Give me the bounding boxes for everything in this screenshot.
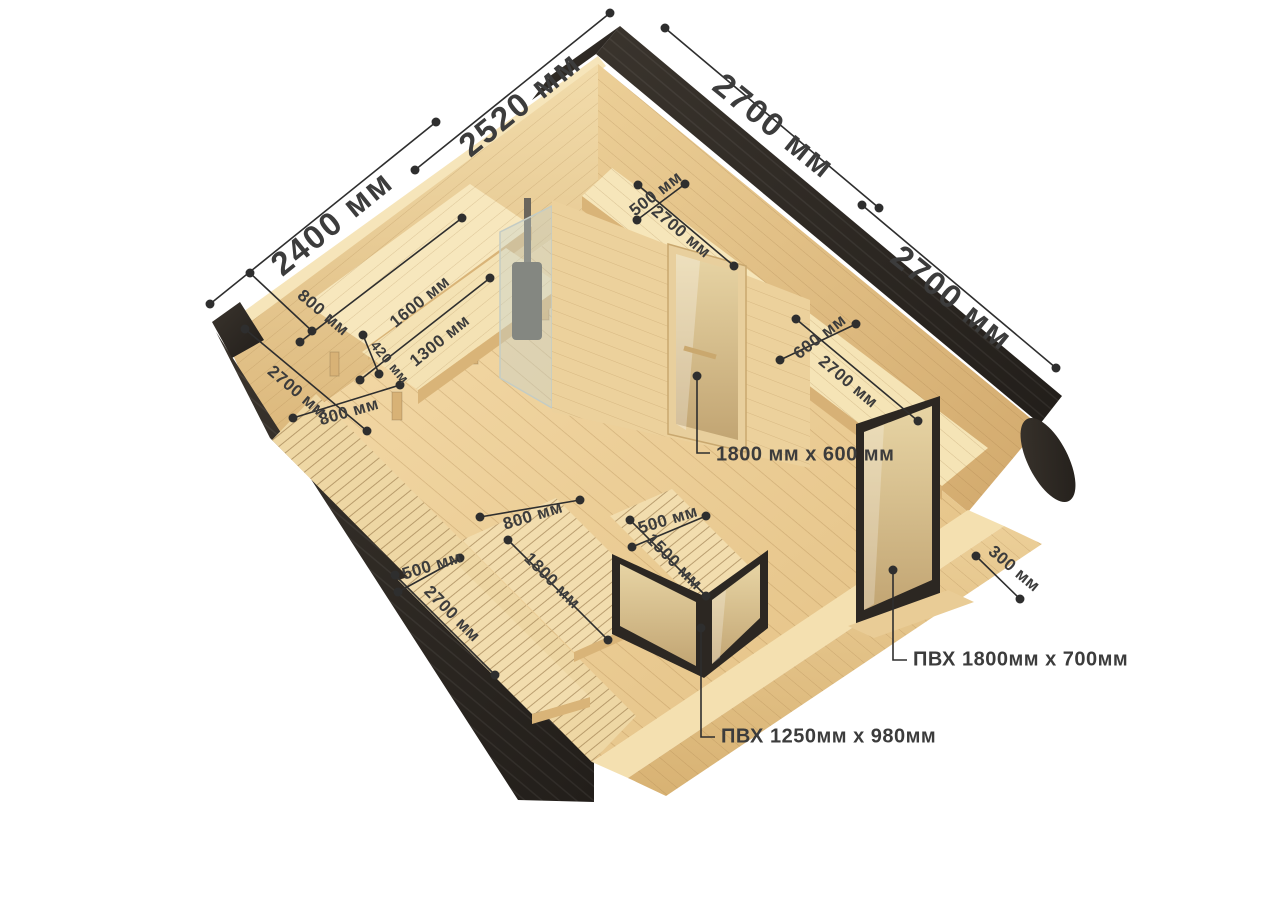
glass-partition-panel	[500, 206, 552, 408]
callout-pvc-window-front: ПВХ 1250мм x 980мм	[721, 726, 936, 749]
building-illustration	[0, 0, 1280, 905]
callout-glass-door: 1800 мм x 600 мм	[716, 444, 894, 467]
callout-pvc-window-right: ПВХ 1800мм x 700мм	[913, 649, 1128, 672]
glass-door	[668, 244, 746, 452]
diagram-canvas: 2400 мм 2520 мм 2700 мм 2700 мм 500 мм 2…	[0, 0, 1280, 905]
